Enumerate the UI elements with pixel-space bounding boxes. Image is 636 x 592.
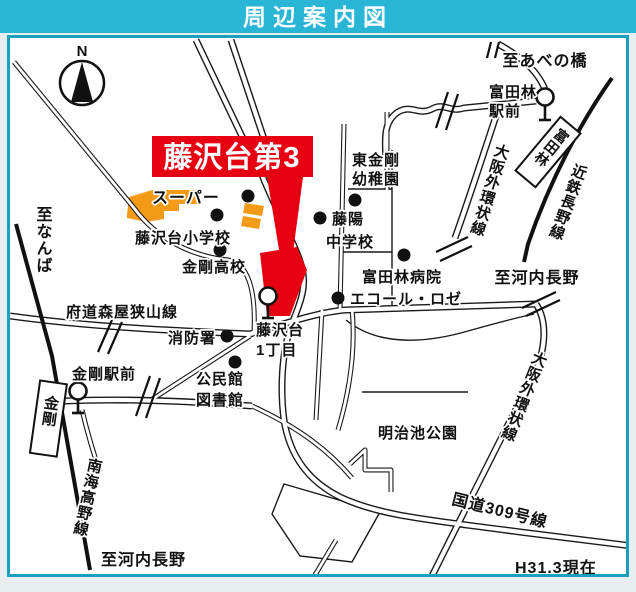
elementary-school-label: 藤沢台小学校	[135, 229, 231, 247]
poi-dot-junior-high	[314, 212, 327, 225]
kongo-ekimae-stop	[70, 383, 87, 400]
ecole-rose-label: エコール・ロゼ	[350, 290, 462, 308]
dest-abenobashi-label: 至あべの橋	[502, 51, 587, 70]
poi-dot-ecole-rose	[332, 292, 345, 305]
map-canvas: 周辺案内図	[0, 0, 636, 592]
tondabayashi-ekimae-stop	[537, 89, 554, 106]
supermarket-label: スーパー	[152, 189, 220, 207]
area-guide-map: 周辺案内図	[0, 0, 636, 592]
dest-kawachinagano-east-label: 至河内長野	[494, 268, 579, 287]
meijiike-park-label: 明治池公園	[378, 424, 458, 442]
fudo-moriya-sayama-label: 府道森屋狭山線	[66, 303, 178, 321]
page-title: 周辺案内図	[243, 4, 393, 30]
fire-station-label: 消防署	[168, 329, 216, 347]
high-school-label: 金剛高校	[181, 258, 246, 276]
poi-dot-fire-station	[221, 330, 234, 343]
poi-dot-elementary-school	[211, 209, 224, 222]
compass-north-label: N	[77, 43, 88, 60]
property-banner-label: 藤沢台第3	[163, 140, 300, 174]
hospital-label: 富田林病院	[362, 268, 442, 286]
poi-dot-community-center	[229, 356, 242, 369]
kongo-ekimae-label: 金剛駅前	[71, 365, 136, 383]
poi-dot-hospital	[398, 249, 411, 262]
poi-dot-kindergarten	[349, 194, 362, 207]
poi-dot-supermarket	[242, 190, 255, 203]
dest-namba-label: 至なんば	[34, 206, 53, 274]
fujisawadai-1chome-stop	[260, 288, 277, 305]
dest-kawachinagano-south-label: 至河内長野	[101, 550, 186, 569]
